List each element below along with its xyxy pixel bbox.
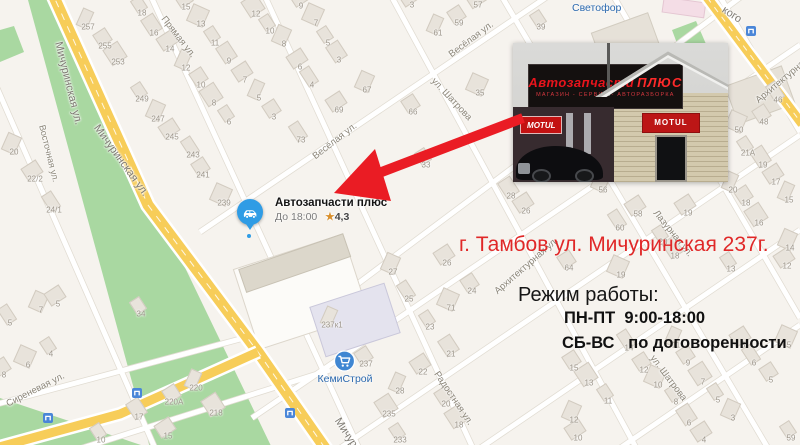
house-number: 241 bbox=[196, 171, 209, 180]
house-number: 9 bbox=[299, 2, 303, 11]
house-number: 11 bbox=[211, 39, 219, 48]
car-grille bbox=[518, 163, 530, 175]
house-number: 56 bbox=[599, 186, 608, 195]
house-number: 3 bbox=[731, 414, 735, 423]
house-number: 25 bbox=[405, 295, 414, 304]
house-number: 10 bbox=[197, 81, 206, 90]
house-number: 22 bbox=[419, 368, 428, 377]
house-number: 5 bbox=[8, 319, 12, 328]
house-number: 15 bbox=[570, 364, 579, 373]
house-number: 17 bbox=[772, 178, 781, 187]
schedule-weekdays: ПН-ПТ 9:00-18:00 bbox=[564, 309, 705, 328]
house-number: 71 bbox=[447, 304, 456, 313]
house-number: 19 bbox=[759, 161, 768, 170]
shop-sign-accent: ПЛЮС bbox=[637, 75, 682, 90]
bus-stop-icon[interactable] bbox=[132, 385, 142, 395]
car-wheel bbox=[532, 169, 551, 182]
house-number: 28 bbox=[396, 387, 405, 396]
poi-kemistroy-label: КемиСтрой bbox=[318, 373, 373, 385]
house-number: 5 bbox=[716, 396, 720, 405]
schedule-weekend: СБ-ВС по договоренности bbox=[562, 334, 787, 353]
house-number: 20 bbox=[729, 186, 738, 195]
house-number: 11 bbox=[604, 397, 612, 406]
house-number: 3 bbox=[337, 56, 341, 65]
house-number: 28 bbox=[507, 192, 516, 201]
house-number: 60 bbox=[616, 224, 625, 233]
house-number: 12 bbox=[570, 416, 579, 425]
house-number: 5 bbox=[769, 376, 773, 385]
house-number: 220 bbox=[189, 384, 202, 393]
house-number: 14 bbox=[786, 244, 795, 253]
house-number: 13 bbox=[197, 20, 206, 29]
house-number: 12 bbox=[252, 10, 261, 19]
house-number: 6 bbox=[26, 361, 30, 370]
house-number: 255 bbox=[98, 42, 111, 51]
poi-svetofor[interactable]: Светофор bbox=[572, 2, 621, 14]
house-number: 69 bbox=[335, 106, 344, 115]
house-number: 247 bbox=[151, 115, 164, 124]
bus-stop-icon[interactable] bbox=[746, 23, 756, 33]
house-number: 6 bbox=[227, 118, 231, 127]
car-wheel bbox=[575, 169, 594, 182]
house-number: 6 bbox=[752, 359, 756, 368]
house-number: 8 bbox=[212, 99, 216, 108]
house-number: 245 bbox=[165, 133, 178, 142]
shopping-cart-icon bbox=[334, 350, 356, 372]
house-number: 46 bbox=[774, 96, 783, 105]
storefront-photo: АвтозапчастиПЛЮС МАГАЗИН - СЕРВИС - АВТО… bbox=[513, 43, 728, 182]
house-number: 218 bbox=[209, 409, 222, 418]
house-number: 14 bbox=[166, 45, 175, 54]
house-number: 9 bbox=[686, 359, 690, 368]
house-number: 249 bbox=[135, 95, 148, 104]
house-number: 15 bbox=[182, 3, 191, 12]
house-number: 24/1 bbox=[46, 206, 62, 215]
poi-kemistroy[interactable]: КемиСтрой bbox=[318, 350, 373, 385]
house-number: 10 bbox=[574, 434, 583, 443]
house-number: 5 bbox=[257, 94, 261, 103]
house-number: 7 bbox=[243, 76, 247, 85]
house-number: 58 bbox=[634, 210, 643, 219]
pin-rating: 4,3 bbox=[335, 211, 350, 223]
house-number: 10 bbox=[266, 27, 275, 36]
bus-stop-icon[interactable] bbox=[285, 405, 295, 415]
house-number: 48 bbox=[760, 118, 769, 127]
bus-stop-icon[interactable] bbox=[43, 410, 53, 420]
house-number: 7 bbox=[39, 306, 43, 315]
house-number: 257 bbox=[81, 23, 94, 32]
house-number: 26 bbox=[443, 259, 452, 268]
pin-title: Автозапчасти плюс bbox=[275, 197, 387, 209]
address-text: г. Тамбов ул. Мичуринская 237г. bbox=[459, 233, 769, 257]
house-number: 27 bbox=[389, 268, 398, 277]
shop-window bbox=[655, 135, 687, 182]
house-number: 16 bbox=[755, 219, 764, 228]
house-number: 9 bbox=[227, 57, 231, 66]
house-number: 5 bbox=[326, 39, 330, 48]
star-icon: ★ bbox=[325, 211, 334, 223]
house-number: 34 bbox=[137, 310, 146, 319]
house-number: 61 bbox=[434, 29, 443, 38]
house-number: 50 bbox=[735, 126, 744, 135]
house-number: 235 bbox=[382, 410, 395, 419]
house-number: 19 bbox=[684, 209, 693, 218]
house-number: 12 bbox=[783, 262, 792, 271]
house-number: 17 bbox=[135, 413, 144, 422]
house-number: 35 bbox=[476, 89, 485, 98]
house-number: 3 bbox=[410, 1, 414, 10]
pin-anchor-dot bbox=[247, 234, 251, 238]
house-number: 39 bbox=[537, 23, 546, 32]
house-number: 16 bbox=[150, 29, 159, 38]
pole bbox=[607, 43, 610, 96]
house-number: 10 bbox=[654, 381, 663, 390]
house-number: 237к1 bbox=[321, 321, 342, 330]
map-pin-avtozapchasti[interactable] bbox=[237, 199, 263, 225]
house-number: 8 bbox=[282, 40, 286, 49]
house-number: 64 bbox=[565, 264, 574, 273]
map-screenshot[interactable]: 2572552532492472452432412391816141210862… bbox=[0, 0, 800, 445]
house-number: 3 bbox=[272, 113, 276, 122]
house-number: 22/2 bbox=[27, 175, 43, 184]
house-number: 5 bbox=[56, 300, 60, 309]
house-number: 243 bbox=[186, 151, 199, 160]
house-number: 233 bbox=[393, 436, 406, 445]
house-number: 6 bbox=[298, 63, 302, 72]
house-number: 21 bbox=[447, 350, 456, 359]
house-number: 5 bbox=[787, 341, 791, 350]
house-number: 12 bbox=[182, 64, 191, 73]
shop-sign: АвтозапчастиПЛЮС МАГАЗИН - СЕРВИС - АВТО… bbox=[528, 64, 683, 109]
motul-wall-sign: MOTUL bbox=[642, 113, 700, 133]
pin-hours: До 18:00 bbox=[275, 211, 317, 223]
house-number: 18 bbox=[138, 9, 147, 18]
house-number: 13 bbox=[727, 265, 736, 274]
schedule-title: Режим работы: bbox=[518, 284, 659, 307]
pin-tail bbox=[246, 224, 254, 234]
house-number: 239 bbox=[217, 199, 230, 208]
motul-banner-sign: MOTUL bbox=[520, 116, 562, 135]
house-number: 59 bbox=[455, 19, 464, 28]
car-icon bbox=[242, 204, 259, 221]
house-number: 33 bbox=[422, 161, 431, 170]
house-number: 66 bbox=[409, 108, 418, 117]
house-number: 6 bbox=[687, 419, 691, 428]
house-number: 21А bbox=[741, 149, 755, 158]
pillar bbox=[584, 113, 591, 154]
house-number: 24 bbox=[468, 287, 477, 296]
house-number: 4 bbox=[702, 436, 706, 445]
house-number: 15 bbox=[164, 432, 173, 441]
house-number: 253 bbox=[111, 58, 124, 67]
house-number: 10 bbox=[97, 436, 106, 445]
house-number: 7 bbox=[314, 19, 318, 28]
house-number: 4 bbox=[49, 350, 53, 359]
house-number: 57 bbox=[474, 1, 483, 10]
house-number: 18 bbox=[742, 199, 751, 208]
ad-banner: MOTUL bbox=[513, 107, 614, 182]
house-number: 59 bbox=[787, 434, 796, 443]
house-number: 220А bbox=[165, 398, 184, 407]
house-number: 15 bbox=[785, 196, 794, 205]
house-number: 8 bbox=[2, 371, 6, 380]
house-number: 7 bbox=[701, 378, 705, 387]
house-number: 20 bbox=[10, 148, 19, 157]
house-number: 26 bbox=[522, 207, 531, 216]
house-number: 12 bbox=[640, 366, 649, 375]
house-number: 23 bbox=[426, 323, 435, 332]
house-number: 67 bbox=[363, 86, 372, 95]
house-number: 73 bbox=[297, 136, 306, 145]
house-number: 13 bbox=[585, 379, 594, 388]
pin-label[interactable]: Автозапчасти плюс До 18:00★4,3 bbox=[275, 197, 387, 223]
house-number: 4 bbox=[310, 81, 314, 90]
house-number: 19 bbox=[617, 271, 626, 280]
